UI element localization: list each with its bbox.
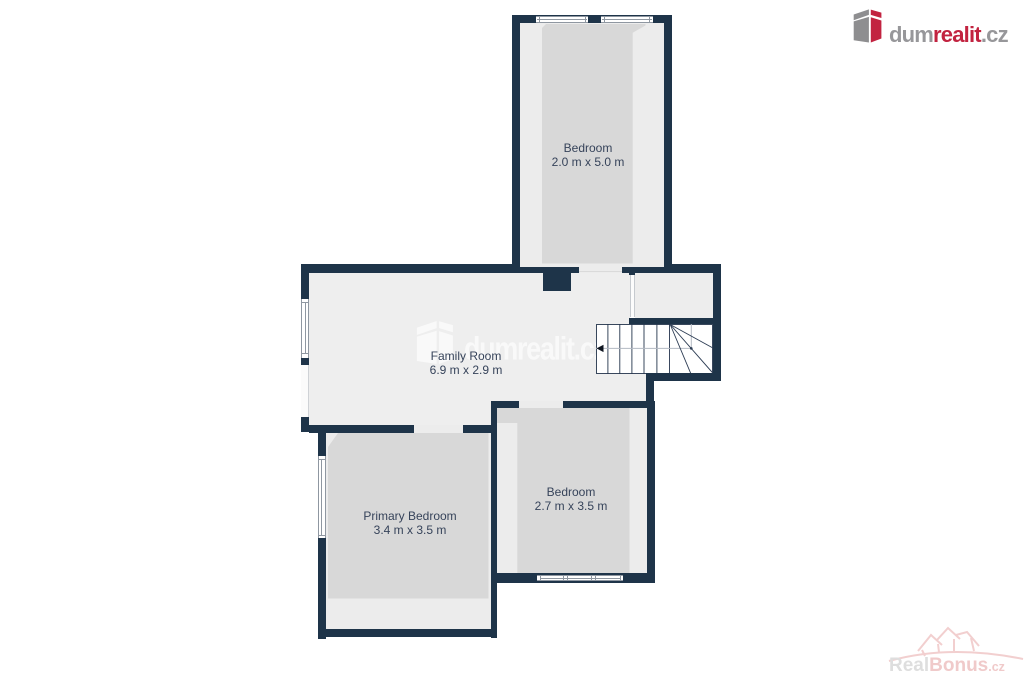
svg-text:dumrealit.cz: dumrealit.cz <box>889 22 1009 45</box>
svg-text:RealBonus.cz: RealBonus.cz <box>889 655 1005 676</box>
